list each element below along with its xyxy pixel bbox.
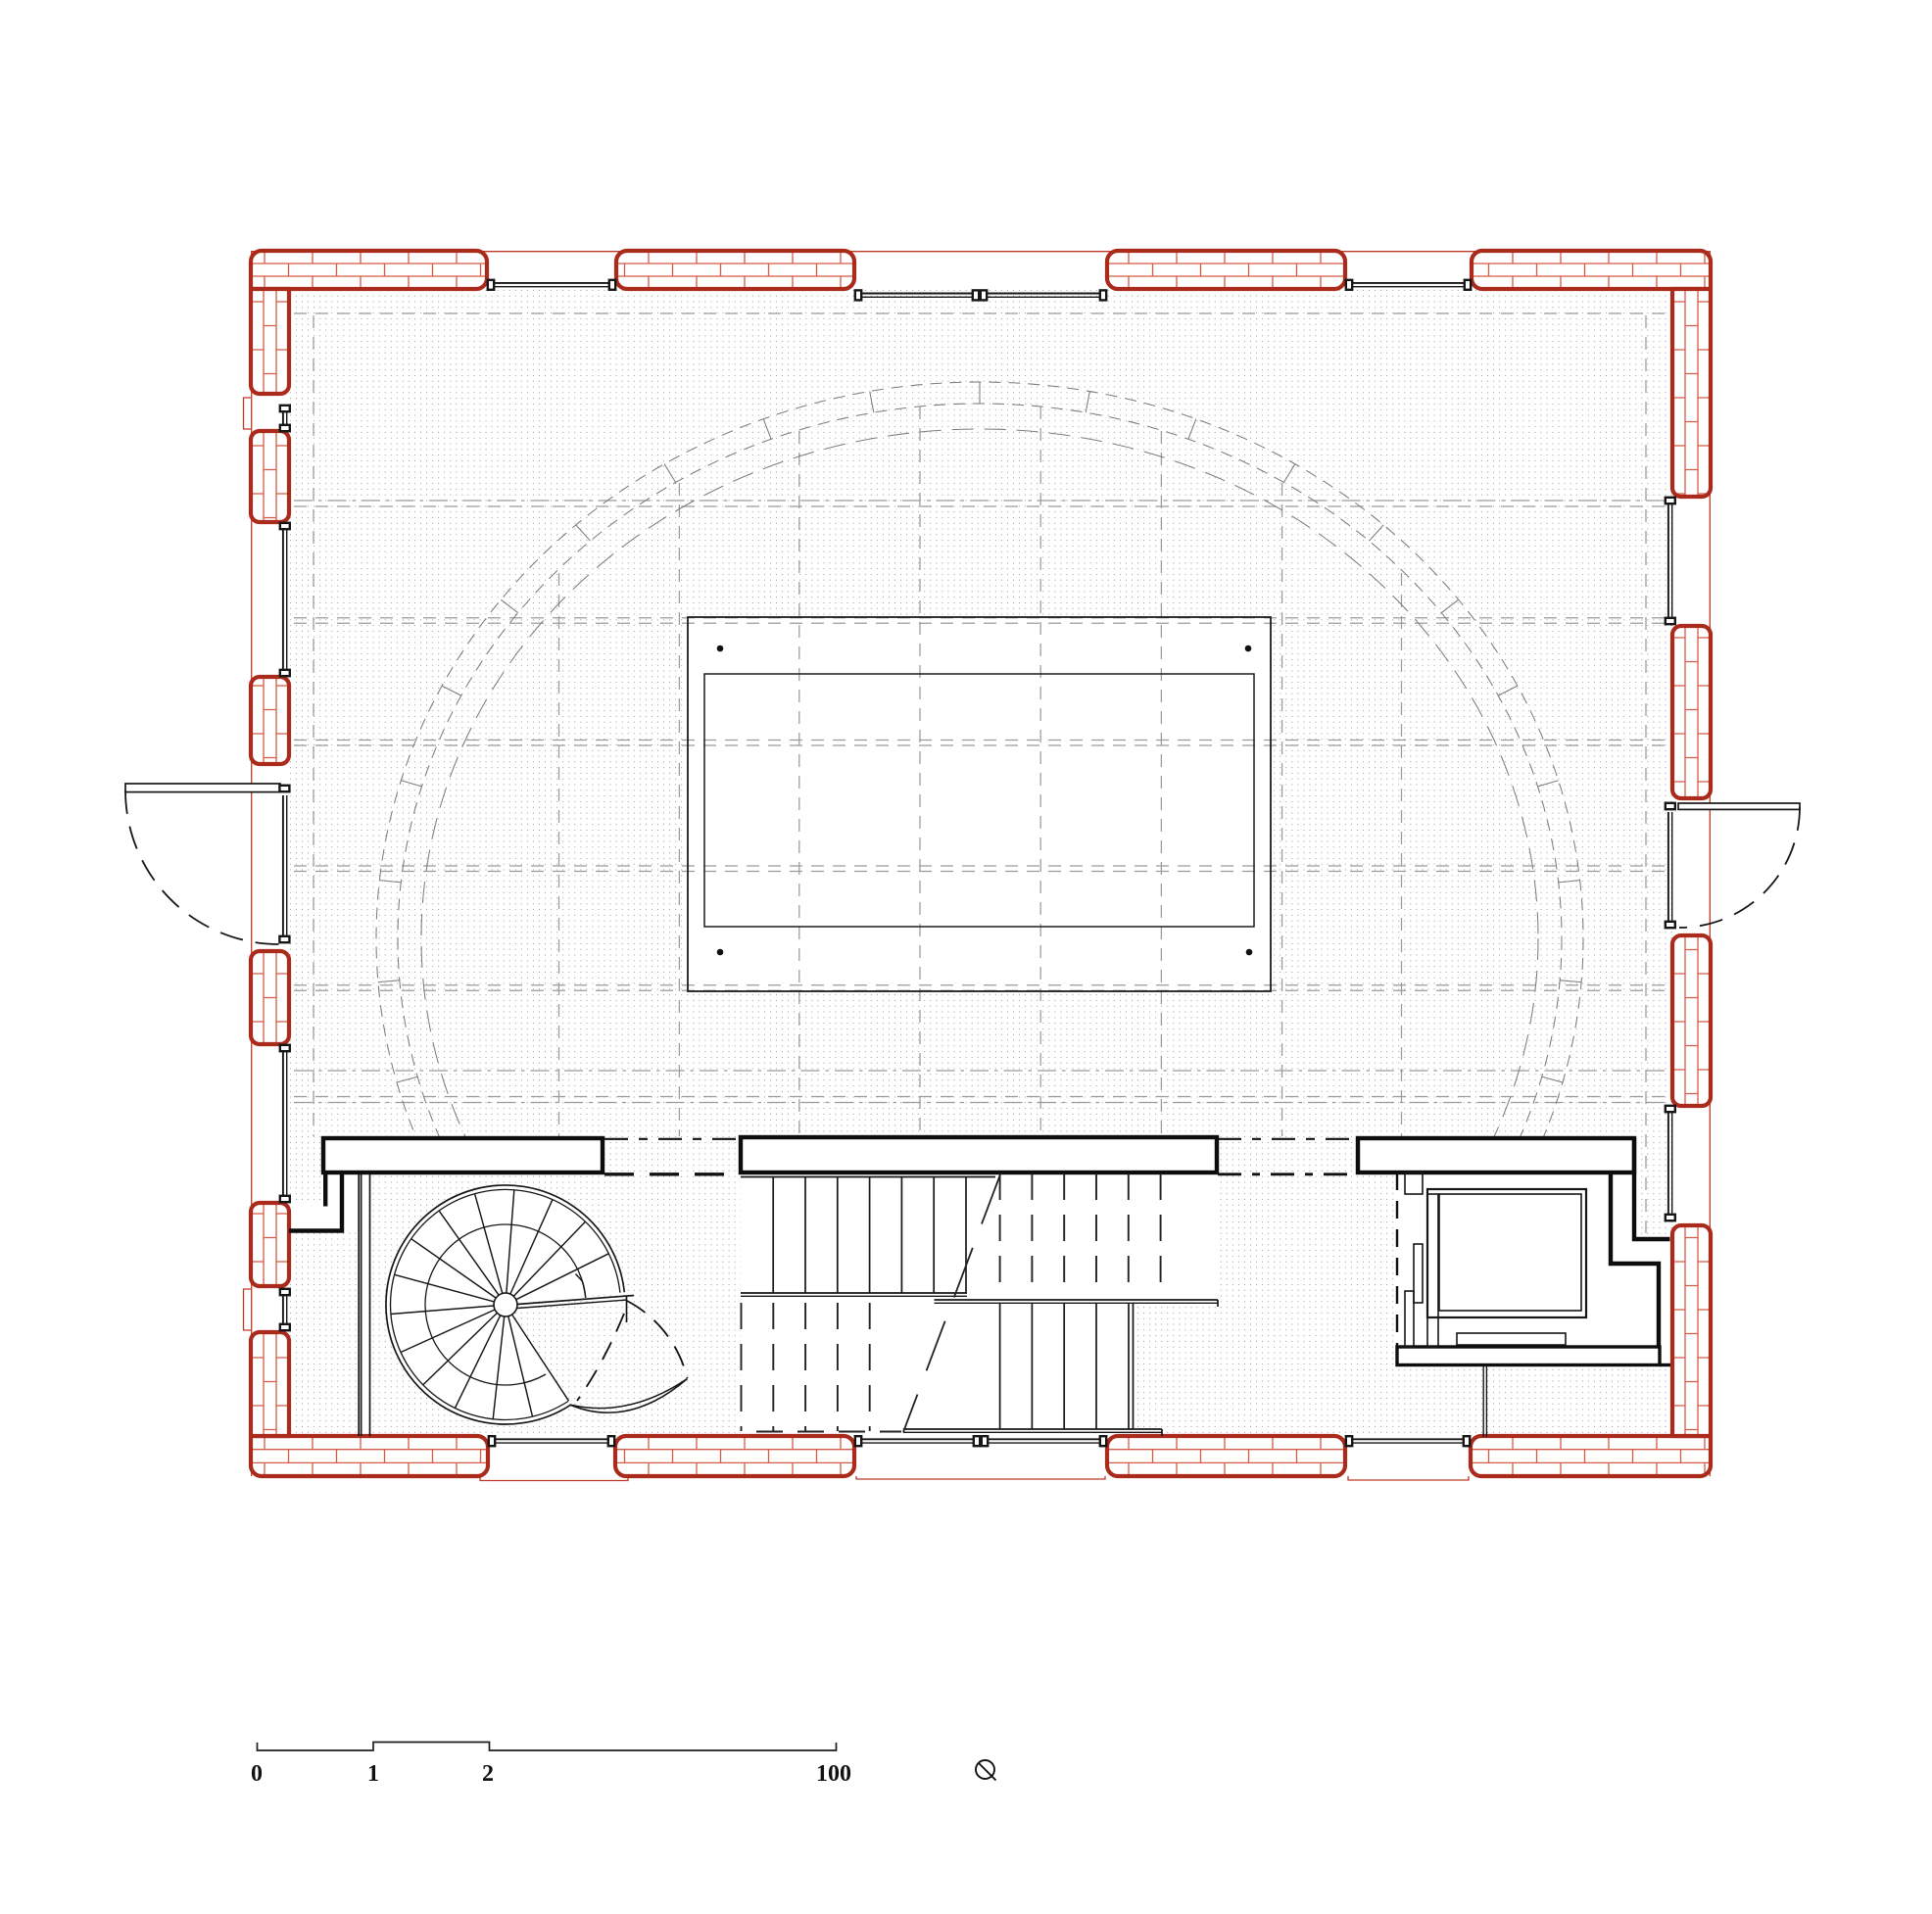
svg-text:100: 100 (816, 1761, 851, 1787)
svg-text:1: 1 (367, 1761, 379, 1787)
svg-text:0: 0 (251, 1761, 263, 1787)
svg-text:2: 2 (482, 1761, 494, 1787)
